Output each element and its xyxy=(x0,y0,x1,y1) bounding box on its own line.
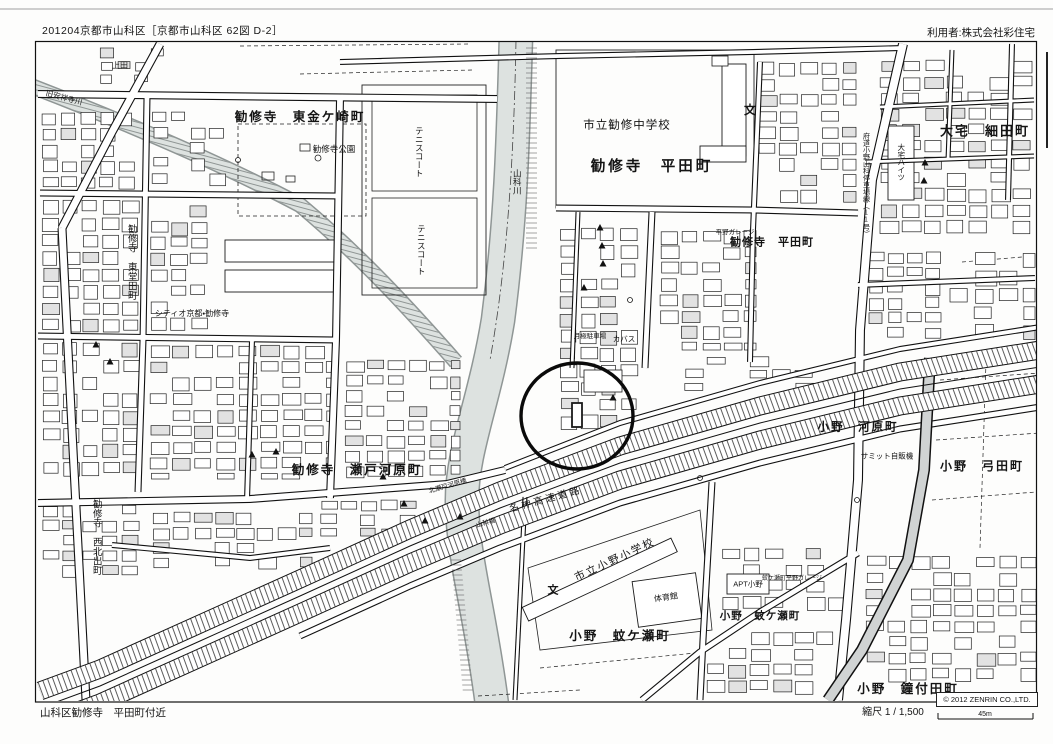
town-label-oyake-hosoda: 大宅 細田町 xyxy=(940,125,1030,138)
kagase-garage-label: 蚊ケ瀬町平野ガレージ xyxy=(762,576,822,582)
map-user-label: 利用者:株式会社彩住宅 xyxy=(927,28,1035,39)
map-canvas: 45m xyxy=(0,0,1053,744)
resident-label-ueda: 上田 xyxy=(112,62,128,70)
scale-distance-label: 45m xyxy=(978,711,992,718)
prefectural-road-label: 府道小野山科停車場線（11号） xyxy=(863,133,870,238)
town-label-ono-yumita: 小野 弓田町 xyxy=(940,460,1024,472)
triangle-marker-icon xyxy=(597,224,604,231)
scale-bar: 45m xyxy=(938,711,1033,719)
school-symbol-1: 文 xyxy=(744,104,756,116)
town-label-higashikanegasaki: 勧修寺 東金ケ崎町 xyxy=(235,111,366,124)
river-label-yamashina: 山科川 xyxy=(513,169,522,195)
kabasu-label: カバス xyxy=(613,335,636,343)
scale-label: 縮尺 1 / 1,500 xyxy=(862,708,924,718)
town-label-higashidoda: 勧修寺 東堂田町 xyxy=(126,224,136,300)
copyright-text: © 2012 ZENRIN CO.,LTD. xyxy=(943,695,1031,704)
oyake-heights-label: 大宅ハイツ xyxy=(897,143,905,181)
summit-vending-label: サミット自販機 xyxy=(861,452,914,460)
park-label: 勧修寺公園 xyxy=(313,145,356,154)
town-label-hirata-right: 勧修寺 平田町 xyxy=(730,238,814,249)
town-label-kagase-right: 小野 蚊ケ瀬町 xyxy=(720,611,801,622)
map-sheet-title: 201204京都市山科区［京都市山科区 62図 D-2］ xyxy=(42,26,283,37)
monthly-parking-label: 月極駐車場 xyxy=(574,334,607,341)
condo-label-citio: シティオ京都・勧修寺 xyxy=(155,310,229,318)
town-label-hirata-main: 勧修寺 平田町 xyxy=(591,160,714,175)
copyright-box: © 2012 ZENRIN CO.,LTD. xyxy=(936,692,1038,707)
zenrin-residential-map-scan: 45m 201204京都市山科区［京都市山科区 62図 D-2］ 利用者:株式会… xyxy=(0,0,1053,744)
subject-property-building xyxy=(572,403,582,427)
triangle-marker-icon xyxy=(600,260,607,267)
town-label-kagase-main: 小野 蚊ケ瀬町 xyxy=(569,630,671,643)
utility-circle-icon xyxy=(628,298,633,303)
tennis-court-label-2: テニスコート xyxy=(417,225,426,276)
junior-high-school-label: 市立勧修中学校 xyxy=(583,120,671,132)
town-label-nishikitade: 勧修寺 西北出町 xyxy=(91,499,101,575)
town-label-ono-kawara: 小野 河原町 xyxy=(818,422,899,434)
tennis-court-label-1: テニスコート xyxy=(415,127,424,178)
town-label-setogawara: 勧修寺 瀬戸河原町 xyxy=(292,464,423,477)
hirano-garage-label: 平野ガレージ xyxy=(716,230,755,237)
footer-area-label: 山科区勧修寺 平田町付近 xyxy=(40,708,166,719)
triangle-marker-icon xyxy=(921,177,928,184)
school-symbol-2: 文 xyxy=(548,586,559,597)
apt-ono-label: APT小野 xyxy=(733,580,763,588)
